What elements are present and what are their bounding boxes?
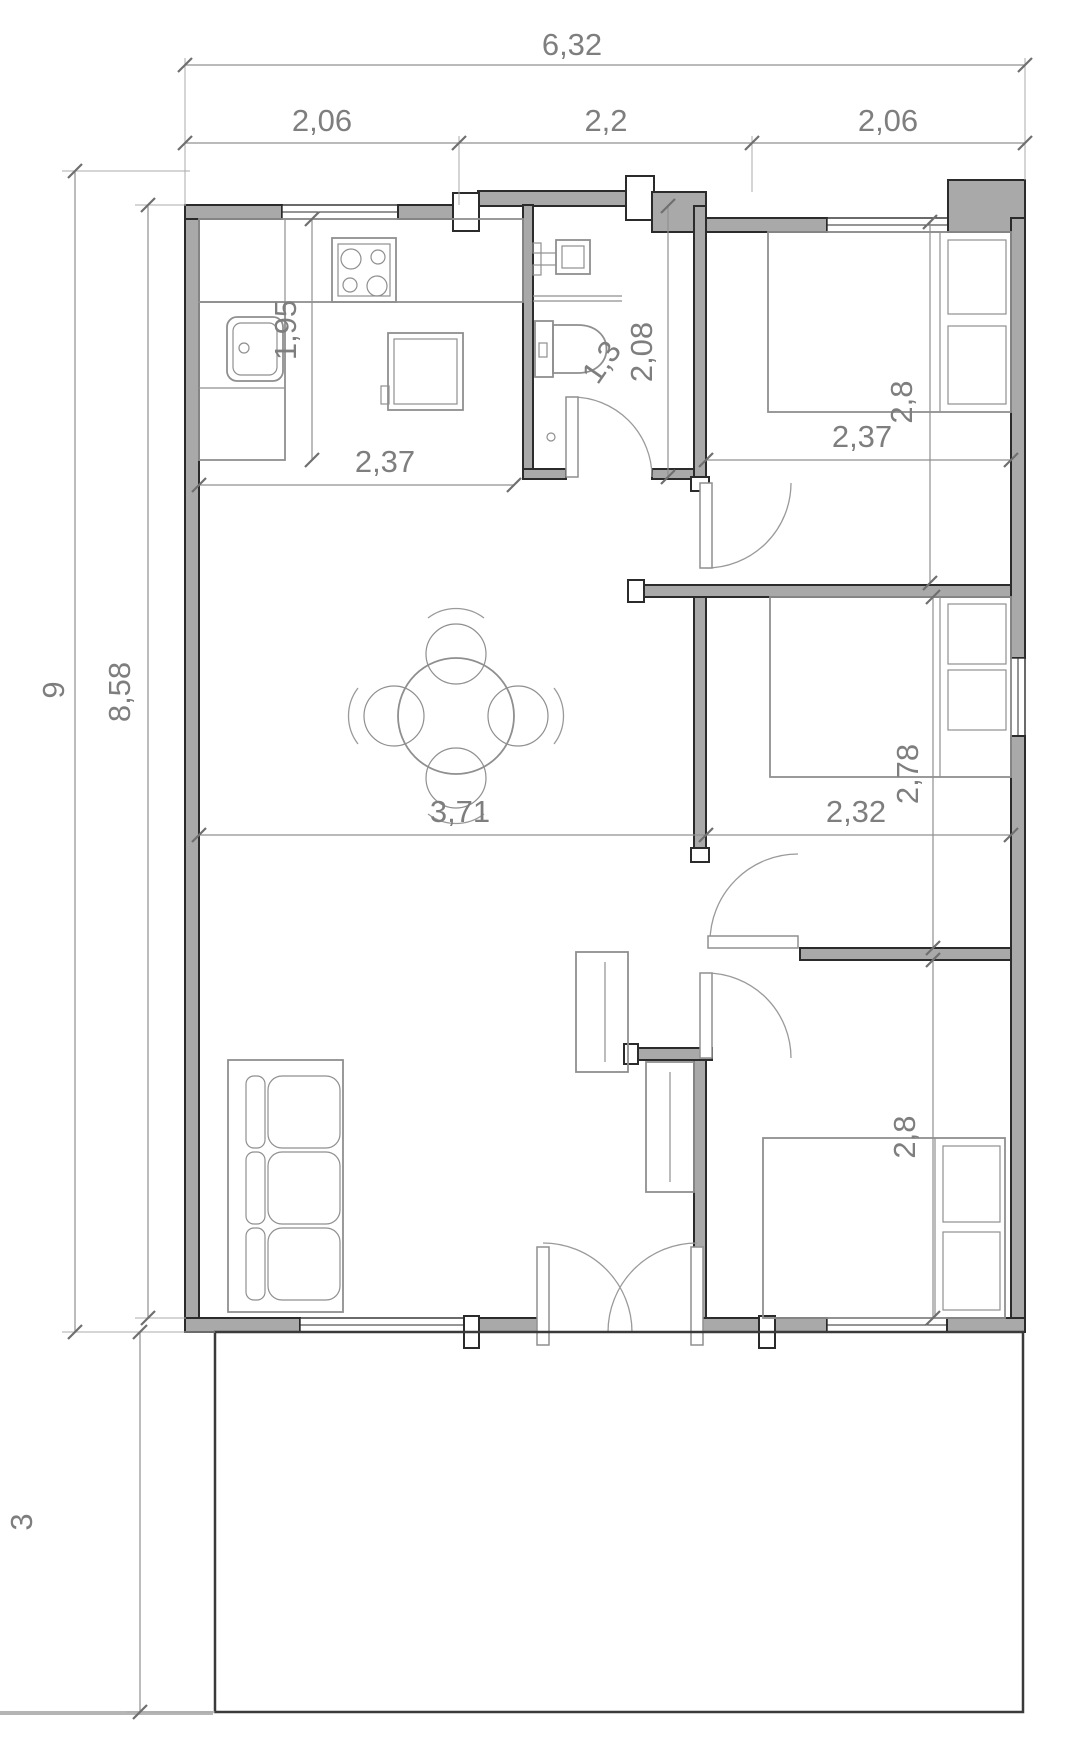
bathroom-door-leaf [566, 397, 578, 477]
dim-bedroom2-width: 2,32 [826, 794, 886, 829]
dimension-lines [62, 58, 1032, 1719]
basin-bracket-2 [533, 265, 541, 275]
wall-cap-top-2 [626, 176, 654, 220]
bedroom3-door-leaf [700, 973, 712, 1058]
dimension-labels: 6,32 2,06 2,2 2,06 9 8,58 3 1,95 2,37 1,… [4, 27, 925, 1531]
wall-cap-bed2 [628, 580, 644, 602]
kitchen-appliance-inner [394, 339, 457, 404]
sofa-back-1 [246, 1076, 265, 1148]
bed2-pillow-1 [948, 604, 1006, 664]
sideboard [576, 952, 628, 1072]
wall-basin [556, 240, 590, 274]
bathroom-door-knob [547, 433, 555, 441]
wall-bed2-top [642, 585, 1011, 597]
toilet-flush [539, 343, 547, 357]
chair-west-back [348, 688, 358, 744]
chair-east [488, 686, 548, 746]
dim-kitchen-depth: 1,95 [268, 300, 303, 360]
wall-cap-bed3 [624, 1044, 638, 1064]
wall-cap-top-1 [453, 193, 479, 231]
wall-bath-left [523, 205, 533, 477]
entry-door-left-leaf [537, 1247, 549, 1345]
wall-bottom-b [470, 1318, 543, 1332]
bedroom2-door-leaf [708, 936, 798, 948]
sofa-back-2 [246, 1152, 265, 1224]
burner-2 [371, 250, 385, 264]
kitchen-appliance [388, 333, 463, 410]
bed2-pillow-2 [948, 670, 1006, 730]
dim-seg-3: 2,06 [858, 103, 918, 138]
entry-door-right-arc [608, 1243, 697, 1332]
dim-seg-1: 2,06 [292, 103, 352, 138]
burner-3 [343, 278, 357, 292]
dining-table [398, 658, 514, 774]
wall-basin-inner [562, 246, 584, 268]
dim-interior-height: 8,58 [102, 662, 137, 722]
wall-bed2-left [694, 597, 706, 850]
wall-right-upper [1011, 218, 1025, 658]
chair-west [364, 686, 424, 746]
terrace-outline [215, 1332, 1023, 1712]
burner-4 [367, 276, 387, 296]
bed1-pillow-1 [948, 240, 1006, 314]
wall-bed2-bottom [800, 948, 1011, 960]
wall-cap-hall-2 [691, 848, 709, 862]
wall-bed1-left [694, 206, 706, 483]
bed3-pillow-2 [943, 1232, 1000, 1310]
wall-top-bed1 [700, 218, 827, 232]
wall-top-bath [478, 191, 628, 206]
bedroom2-door-arc [710, 854, 798, 942]
wall-right-lower [1011, 736, 1025, 1332]
basin-bracket-1 [533, 243, 541, 253]
wall-top-kitchen-a [185, 205, 282, 219]
dim-kitchen-width: 2,37 [355, 444, 415, 479]
bedroom1-door-leaf [700, 483, 712, 568]
dim-bathroom-depth: 2,08 [624, 322, 659, 382]
wall-bottom-a [185, 1318, 300, 1332]
basin-stem [541, 253, 556, 265]
dim-living-width: 3,71 [430, 794, 490, 829]
bed1-pillow-2 [948, 326, 1006, 404]
bed3 [763, 1138, 1005, 1318]
bathroom-door-arc [572, 397, 652, 477]
living-area [228, 608, 628, 1312]
bedroom1-door-arc [706, 483, 791, 568]
sofa-back-3 [246, 1228, 265, 1300]
entry-door-left-arc [543, 1243, 632, 1332]
dim-bedroom3-depth: 2,8 [887, 1115, 922, 1158]
dim-seg-2: 2,2 [584, 103, 627, 138]
wall-bath-bottom-a [523, 469, 566, 479]
entry-door-right-leaf [691, 1247, 703, 1345]
sofa-seat-2 [268, 1152, 340, 1224]
burner-1 [341, 249, 361, 269]
doors [537, 397, 798, 1345]
kitchen-area [199, 219, 523, 460]
sink-faucet [239, 343, 249, 353]
dim-bedroom1-depth: 2,8 [884, 380, 919, 423]
toilet-tank [535, 321, 553, 377]
dim-overall-width: 6,32 [542, 27, 602, 62]
terrace-area [0, 1332, 1023, 1713]
dim-overall-height: 9 [36, 681, 71, 698]
wall-left [185, 205, 199, 1332]
chair-north-back [428, 608, 484, 618]
bed3-pillow-1 [943, 1146, 1000, 1222]
dim-bathroom-width: 1,3 [575, 334, 628, 389]
chair-east-back [554, 688, 564, 744]
dim-bedroom2-depth: 2,78 [890, 744, 925, 804]
floor-plan-page: 6,32 2,06 2,2 2,06 9 8,58 3 1,95 2,37 1,… [0, 0, 1084, 1757]
sofa-seat-1 [268, 1076, 340, 1148]
sofa-frame [228, 1060, 343, 1312]
bedroom3-door-arc [706, 973, 791, 1058]
sofa-seat-3 [268, 1228, 340, 1300]
floor-plan-drawing: 6,32 2,06 2,2 2,06 9 8,58 3 1,95 2,37 1,… [0, 0, 1084, 1757]
chair-north [426, 624, 486, 684]
dim-terrace-depth: 3 [4, 1513, 39, 1530]
stove [332, 238, 396, 302]
wall-bottom-d [947, 1318, 1025, 1332]
